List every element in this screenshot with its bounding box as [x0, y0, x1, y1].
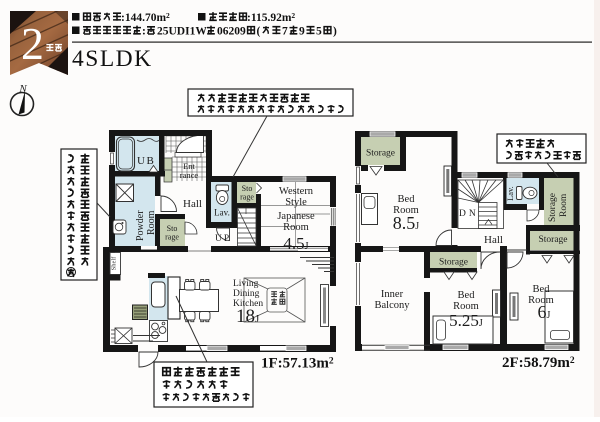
svg-text:7: 7	[282, 26, 288, 38]
svg-text:rage: rage	[165, 233, 179, 242]
svg-text:DN: DN	[459, 209, 479, 219]
svg-text:25UDI1W: 25UDI1W	[157, 26, 207, 38]
svg-text::: :	[142, 26, 146, 38]
svg-text:Storage: Storage	[439, 258, 468, 268]
svg-text::115.92m2: :115.92m2	[247, 11, 295, 24]
svg-text:2F:58.79m2: 2F:58.79m2	[502, 355, 575, 371]
svg-text:UP: UP	[215, 234, 231, 244]
svg-text:Powder: Powder	[135, 210, 146, 241]
svg-text:Bed: Bed	[458, 290, 476, 301]
svg-text:Room: Room	[283, 222, 309, 233]
svg-text:5.25J: 5.25J	[449, 311, 483, 330]
svg-text:1F:57.13m2: 1F:57.13m2	[261, 356, 334, 372]
svg-text:Storage: Storage	[548, 193, 558, 222]
svg-text:): )	[333, 26, 337, 38]
svg-text:Balcony: Balcony	[375, 300, 411, 311]
svg-text:N: N	[18, 83, 27, 95]
svg-text:Western: Western	[279, 186, 314, 197]
svg-text:Hall: Hall	[183, 198, 202, 210]
svg-text:Bed: Bed	[398, 194, 416, 205]
svg-text:Living: Living	[233, 279, 259, 289]
svg-text:Dining: Dining	[233, 289, 260, 299]
svg-text:2: 2	[21, 18, 44, 69]
svg-text:Lav.: Lav.	[214, 208, 230, 218]
svg-text:Hall: Hall	[484, 234, 503, 246]
svg-text:rance: rance	[180, 170, 199, 180]
svg-text:Storage: Storage	[366, 149, 395, 159]
svg-text:(: (	[257, 26, 261, 38]
svg-text:UB: UB	[137, 155, 155, 167]
svg-text:06209: 06209	[217, 26, 246, 38]
svg-text:Style: Style	[285, 197, 307, 208]
svg-text:Room: Room	[146, 210, 157, 235]
svg-text:4SLDK: 4SLDK	[72, 46, 153, 72]
svg-text:Storage: Storage	[538, 235, 567, 245]
svg-text:Inner: Inner	[381, 289, 404, 300]
svg-text:Japanese: Japanese	[277, 211, 315, 222]
svg-text:5: 5	[316, 26, 322, 38]
svg-text:Lav.: Lav.	[505, 186, 515, 201]
svg-text:rage: rage	[240, 193, 254, 202]
svg-text:9: 9	[299, 26, 305, 38]
svg-text:Shelf: Shelf	[111, 256, 118, 271]
svg-text::144.70m2: :144.70m2	[121, 11, 170, 24]
svg-text:Bed: Bed	[533, 284, 551, 295]
svg-text:Room: Room	[559, 193, 569, 217]
